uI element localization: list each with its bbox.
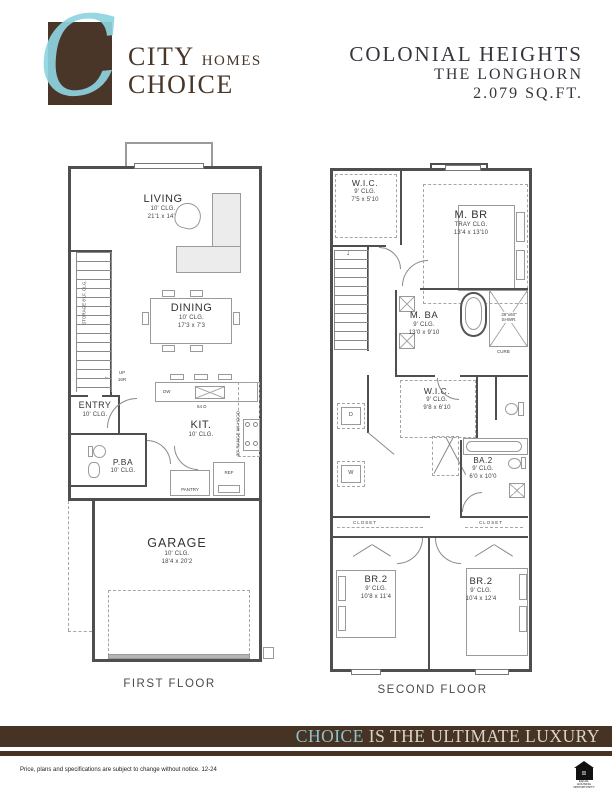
room-kitchen: KIT. 10' CLG.	[166, 418, 236, 440]
brand-line-1: CITY HOMES	[128, 44, 262, 70]
equal-housing-label: EQUAL HOUSING OPPORTUNITY	[572, 780, 596, 789]
wall-segment	[476, 375, 478, 438]
tub-inner	[465, 297, 482, 330]
burner-icon	[253, 422, 258, 427]
wall-segment	[330, 245, 386, 247]
window	[445, 165, 481, 171]
plan-area: 2.079 SQ.FT.	[349, 84, 583, 103]
plan-name: THE LONGHORN	[349, 65, 583, 84]
plan-title-block: COLONIAL HEIGHTS THE LONGHORN 2.079 SQ.F…	[349, 43, 583, 103]
room-garage: GARAGE 10' CLG. 18'4 x 20'2	[127, 535, 227, 567]
pillow	[519, 606, 527, 632]
stool	[218, 374, 232, 380]
first-floor-plan: STORAGE 8'LF. CLG. ← UP 16R LIVING 10' C…	[62, 140, 277, 700]
washer-label: W	[341, 470, 361, 477]
parking-pad-outline	[108, 590, 250, 656]
room-name: BR.2	[451, 576, 511, 588]
room-name: GARAGE	[127, 535, 227, 551]
burner-icon	[245, 422, 250, 427]
brand-wordmark: CITY HOMES CHOICE	[128, 44, 262, 98]
storage-note: STORAGE 8'LF. CLG.	[81, 258, 86, 348]
room-ceiling: 9' CLG.	[393, 322, 455, 330]
room-master-bath: M. BA 9' CLG. 13'0 x 9'10	[393, 310, 455, 338]
window	[475, 669, 509, 675]
room-ceiling: 9' CLG.	[343, 586, 409, 594]
overhang-dashed-line	[68, 631, 92, 632]
wall-segment	[68, 433, 147, 435]
room-dims: 6'0 x 10'0	[459, 474, 507, 482]
room-ceiling: 10' CLG.	[166, 432, 236, 440]
tagline-highlight: CHOICE	[296, 726, 364, 746]
stairs-up-label: UP	[114, 370, 130, 375]
wall-segment	[68, 485, 147, 487]
room-bedroom-2-right: BR.2 9' CLG. 10'4 x 12'4	[451, 576, 511, 604]
room-bedroom-2-left: BR.2 9' CLG. 10'8 x 11'4	[343, 574, 409, 602]
room-powder-bath: P.BA 10' CLG.	[96, 457, 150, 476]
room-name: M. BR	[429, 208, 513, 222]
room-name: KIT.	[166, 418, 236, 432]
wall-segment	[428, 536, 430, 672]
stool	[194, 374, 208, 380]
toilet-bowl	[508, 458, 521, 469]
side-step	[263, 647, 274, 659]
overhang-dashed-line	[68, 501, 69, 631]
first-floor-caption: FIRST FLOOR	[62, 678, 277, 690]
burner-icon	[253, 441, 258, 446]
chair	[190, 290, 203, 297]
island-size-note: 54 D	[197, 404, 207, 409]
room-ceiling: 9' CLG.	[401, 397, 473, 405]
kitchen-sink	[195, 386, 225, 399]
room-ceiling: 10' CLG.	[144, 315, 239, 323]
room-ceiling: 10' CLG.	[127, 551, 227, 559]
shower-size-note: 36"x60" SHWR.	[493, 312, 525, 323]
room-ceiling: 10' CLG.	[96, 468, 150, 476]
room-wic-1: W.I.C. 9' CLG. 7'5 x 5'10	[333, 178, 397, 205]
room-dims: 9'8 x 6'10	[401, 405, 473, 413]
dishwasher-label: DW	[163, 389, 171, 394]
wall-segment	[330, 516, 430, 518]
room-dims: 13'0 x 9'10	[393, 330, 455, 338]
shower-note-line2: SHWR.	[493, 317, 525, 322]
wall-segment	[367, 375, 369, 433]
closet-rod-line	[465, 527, 523, 528]
pillow	[519, 574, 527, 600]
footer-rule	[0, 751, 612, 756]
stairs-arrow-icon: ←	[104, 374, 110, 381]
chair	[162, 345, 175, 352]
equal-housing-logo: = EQUAL HOUSING OPPORTUNITY	[572, 761, 596, 789]
closet-label-left: CLOSET	[351, 520, 379, 525]
second-floor-caption: SECOND FLOOR	[325, 684, 540, 696]
tagline-banner: CHOICE IS THE ULTIMATE LUXURY	[0, 726, 612, 747]
room-name: BA.2	[459, 456, 507, 466]
room-ceiling: TRAY CLG.	[429, 222, 513, 230]
room-master-bedroom: M. BR TRAY CLG. 13'4 x 13'10	[429, 208, 513, 238]
wall-segment	[495, 375, 497, 420]
wall-segment	[460, 516, 528, 518]
sofa-section	[176, 246, 241, 273]
room-dining: DINING 10' CLG. 17'3 x 7'3	[144, 301, 239, 331]
toilet-bowl	[505, 403, 518, 415]
stool	[170, 374, 184, 380]
disclaimer-text: Price, plans and specifications are subj…	[20, 767, 217, 773]
burner-icon	[245, 441, 250, 446]
down-arrow-icon: ↓	[346, 248, 350, 258]
room-name: BR.2	[343, 574, 409, 586]
room-dims: 13'4 x 13'10	[429, 230, 513, 238]
tagline-rest: IS THE ULTIMATE LUXURY	[364, 726, 600, 746]
pantry-label: PANTRY	[170, 487, 210, 492]
room-bath-2: BA.2 9' CLG. 6'0 x 10'0	[459, 456, 507, 482]
brand-choice: CHOICE	[128, 72, 262, 98]
wall-segment	[460, 375, 528, 377]
room-name: W.I.C.	[401, 386, 473, 397]
room-name: P.BA	[96, 457, 150, 468]
stairs-risers-label: 16R	[114, 377, 130, 382]
closet-rod-line	[337, 527, 423, 528]
fridge-label: REF	[213, 470, 245, 475]
pillow	[516, 212, 525, 242]
toilet-tank	[518, 402, 524, 416]
room-dims: 10'4 x 12'4	[451, 596, 511, 604]
room-name: DINING	[144, 301, 239, 315]
tagline-text: CHOICE IS THE ULTIMATE LUXURY	[296, 726, 600, 747]
brand-homes: HOMES	[202, 53, 262, 69]
pillow	[338, 606, 346, 631]
room-dims: 18'4 x 20'2	[127, 559, 227, 567]
chair	[162, 290, 175, 297]
room-ceiling: 9' CLG.	[333, 189, 397, 197]
toilet-tank	[521, 457, 526, 469]
room-ceiling: 9' CLG.	[451, 588, 511, 596]
room-dims: 10'8 x 11'4	[343, 594, 409, 602]
logo-monogram-c: C	[33, 0, 126, 116]
room-name: M. BA	[393, 310, 455, 322]
room-dims: 7'5 x 5'10	[333, 197, 397, 205]
brand-city: CITY	[128, 42, 194, 71]
wall-segment	[395, 375, 435, 377]
vanity-sink	[509, 483, 525, 498]
garage-door	[108, 654, 250, 659]
patio-door-window	[134, 163, 204, 169]
room-ceiling: 9' CLG.	[459, 466, 507, 474]
room-name: W.I.C.	[333, 178, 397, 189]
refrigerator-inner	[218, 485, 240, 493]
room-wic-2: W.I.C. 9' CLG. 9'8 x 6'10	[401, 386, 473, 413]
second-floor-plan: W.I.C. 9' CLG. 7'5 x 5'10 M. BR TRAY CLG…	[325, 160, 540, 705]
closet-label-right: CLOSET	[477, 520, 505, 525]
room-dims: 17'3 x 7'3	[144, 323, 239, 331]
flyer-page: C CITY HOMES CHOICE COLONIAL HEIGHTS THE…	[0, 0, 612, 792]
equal-housing-roof-icon	[574, 761, 594, 768]
community-name: COLONIAL HEIGHTS	[349, 43, 583, 65]
wall-segment	[68, 395, 88, 397]
bathtub-inner	[466, 441, 522, 452]
chair	[190, 345, 203, 352]
range-note: 30" RANGE W/ HOOD	[235, 395, 240, 473]
curb-note: CURB	[497, 349, 510, 354]
stairs-down	[334, 250, 369, 350]
window	[351, 669, 381, 675]
pillow	[516, 250, 525, 280]
wall-segment	[400, 168, 402, 245]
dryer-label: D	[341, 412, 361, 419]
